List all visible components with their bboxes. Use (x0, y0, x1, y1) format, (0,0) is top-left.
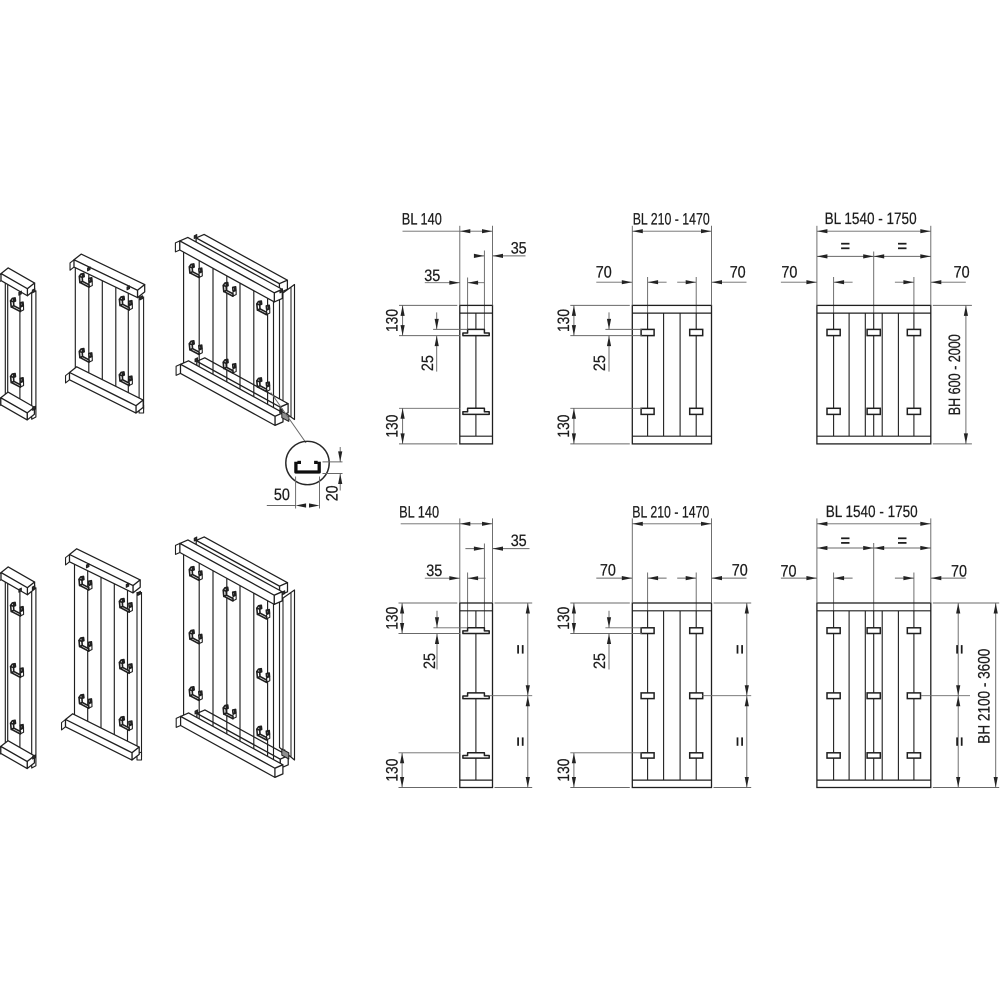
svg-text:70: 70 (781, 263, 797, 281)
svg-text:70: 70 (600, 562, 616, 580)
svg-text:130: 130 (555, 759, 573, 782)
svg-text:BL 140: BL 140 (402, 211, 442, 229)
svg-text:20: 20 (324, 485, 342, 501)
svg-text:70: 70 (781, 563, 797, 581)
svg-text:130: 130 (384, 415, 402, 438)
svg-text:BL 1540 - 1750: BL 1540 - 1750 (825, 210, 917, 228)
svg-text:BL 210 - 1470: BL 210 - 1470 (633, 211, 710, 229)
svg-text:130: 130 (384, 309, 402, 332)
svg-text:BL 140: BL 140 (399, 503, 439, 521)
svg-text:70: 70 (954, 263, 970, 281)
svg-text:35: 35 (424, 267, 440, 285)
svg-text:130: 130 (555, 309, 573, 332)
svg-text:35: 35 (511, 239, 527, 257)
svg-text:50: 50 (274, 486, 290, 504)
svg-text:35: 35 (511, 532, 527, 550)
svg-text:25: 25 (419, 355, 437, 371)
svg-text:130: 130 (384, 759, 402, 782)
svg-text:35: 35 (426, 562, 442, 580)
svg-text:70: 70 (732, 562, 748, 580)
svg-text:130: 130 (555, 415, 573, 438)
svg-text:25: 25 (591, 355, 609, 371)
svg-text:25: 25 (421, 653, 439, 669)
svg-text:BL 1540 - 1750: BL 1540 - 1750 (826, 503, 918, 521)
svg-text:130: 130 (555, 607, 573, 630)
svg-text:BL 210 - 1470: BL 210 - 1470 (632, 503, 709, 521)
svg-text:70: 70 (730, 264, 746, 282)
svg-text:130: 130 (384, 607, 402, 630)
svg-text:BH 600 - 2000: BH 600 - 2000 (946, 334, 964, 415)
svg-text:70: 70 (596, 264, 612, 282)
svg-text:70: 70 (951, 563, 967, 581)
svg-text:25: 25 (591, 653, 609, 669)
svg-text:BH 2100 - 3600: BH 2100 - 3600 (975, 649, 993, 744)
